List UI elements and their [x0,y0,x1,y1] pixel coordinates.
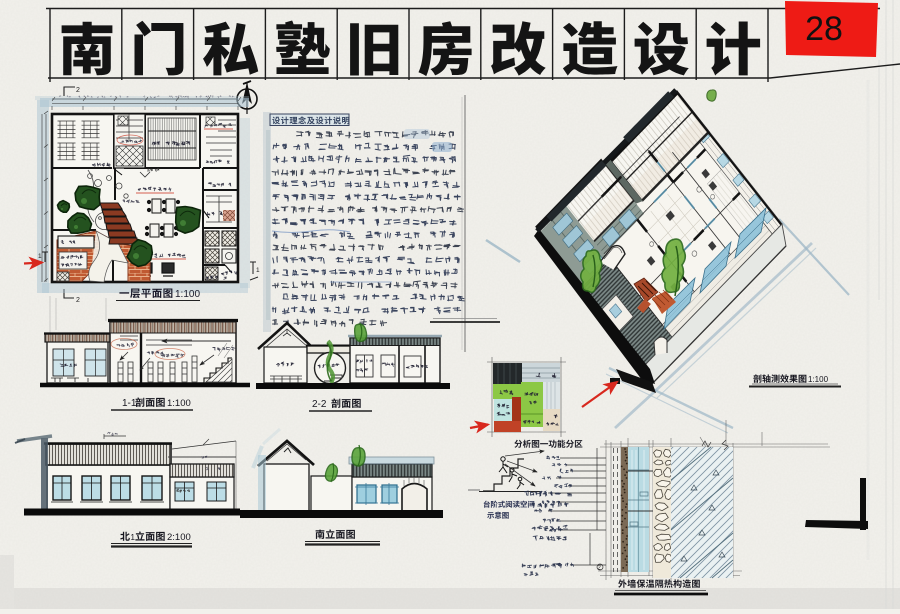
svg-text:2: 2 [76,297,80,304]
svg-text:28: 28 [805,10,843,48]
svg-text:1:100: 1:100 [175,289,200,300]
svg-text:2: 2 [76,87,80,94]
svg-text:1: 1 [38,253,42,260]
svg-text:1: 1 [131,533,136,542]
svg-text:1:100: 1:100 [167,398,191,409]
svg-text:1:100: 1:100 [808,375,829,384]
svg-text:2:100: 2:100 [167,532,191,543]
svg-text:2-2: 2-2 [312,399,327,410]
svg-text:1: 1 [256,267,260,274]
svg-text:1-1: 1-1 [122,398,137,409]
